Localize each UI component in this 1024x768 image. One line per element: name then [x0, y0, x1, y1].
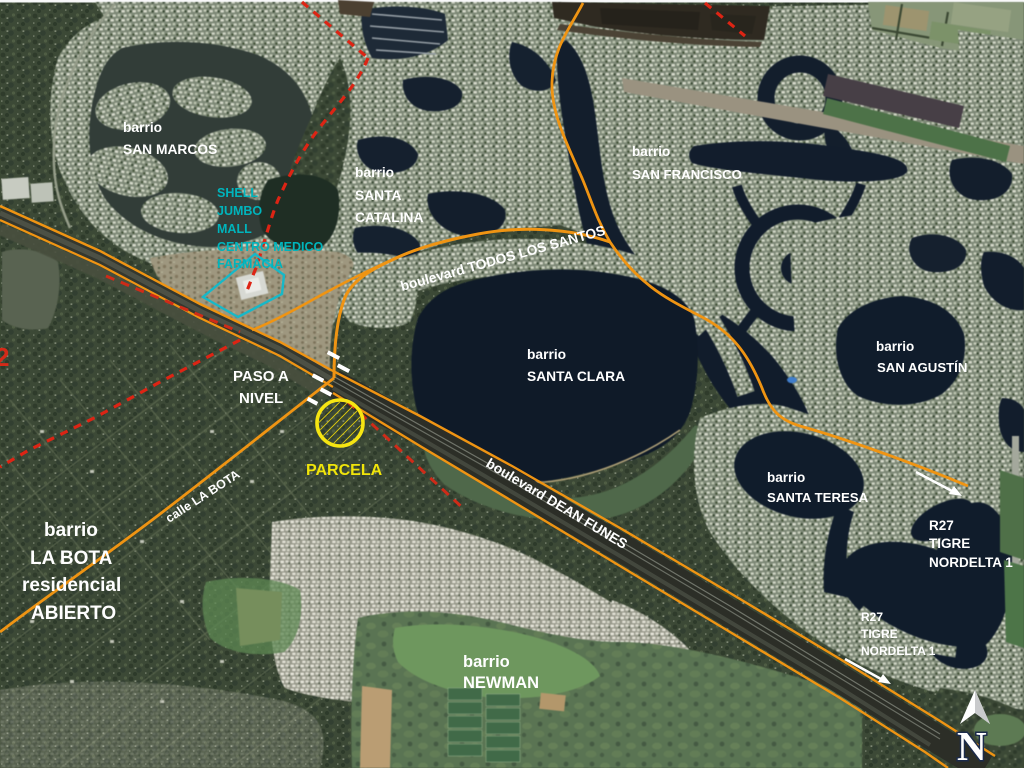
svg-text:SHELL: SHELL	[217, 186, 258, 200]
svg-text:SANTA: SANTA	[355, 188, 402, 203]
svg-text:NORDELTA 1: NORDELTA 1	[929, 555, 1013, 570]
svg-text:barrio: barrio	[123, 120, 162, 135]
svg-text:barrio: barrio	[44, 520, 98, 541]
svg-text:residencial: residencial	[22, 575, 121, 596]
svg-text:barrio: barrio	[355, 165, 394, 180]
svg-text:SAN FRANCISCO: SAN FRANCISCO	[632, 167, 742, 182]
svg-text:TIGRE: TIGRE	[929, 536, 970, 551]
svg-text:PARCELA: PARCELA	[306, 462, 383, 479]
svg-text:TIGRE: TIGRE	[861, 627, 898, 641]
svg-text:SAN AGUSTÍN: SAN AGUSTÍN	[877, 360, 967, 375]
svg-text:PASO A: PASO A	[233, 368, 289, 385]
svg-text:MALL: MALL	[217, 222, 252, 236]
svg-text:LA BOTA: LA BOTA	[30, 548, 113, 569]
svg-text:SAN MARCOS: SAN MARCOS	[123, 142, 217, 157]
svg-text:SANTA CLARA: SANTA CLARA	[527, 369, 625, 384]
svg-text:barrio: barrio	[527, 347, 566, 362]
svg-text:barrio: barrio	[767, 470, 805, 485]
svg-text:N: N	[957, 723, 987, 768]
svg-text:R27: R27	[861, 610, 883, 624]
svg-text:R27: R27	[929, 518, 954, 533]
svg-text:CENTRO MEDICO: CENTRO MEDICO	[217, 240, 324, 254]
svg-text:barrio: barrio	[632, 144, 670, 159]
svg-text:NIVEL: NIVEL	[239, 390, 283, 407]
svg-text:2: 2	[0, 342, 9, 372]
svg-text:JUMBO: JUMBO	[217, 204, 262, 218]
svg-text:FARMACIA: FARMACIA	[217, 257, 283, 271]
svg-text:NEWMAN: NEWMAN	[463, 674, 539, 692]
svg-text:barrio: barrio	[876, 339, 914, 354]
svg-text:NORDELTA 1: NORDELTA 1	[861, 644, 936, 658]
svg-text:SANTA TERESA: SANTA TERESA	[767, 490, 869, 505]
svg-text:ABIERTO: ABIERTO	[31, 603, 116, 624]
svg-text:barrio: barrio	[463, 653, 510, 671]
svg-text:CATALINA: CATALINA	[355, 210, 423, 225]
